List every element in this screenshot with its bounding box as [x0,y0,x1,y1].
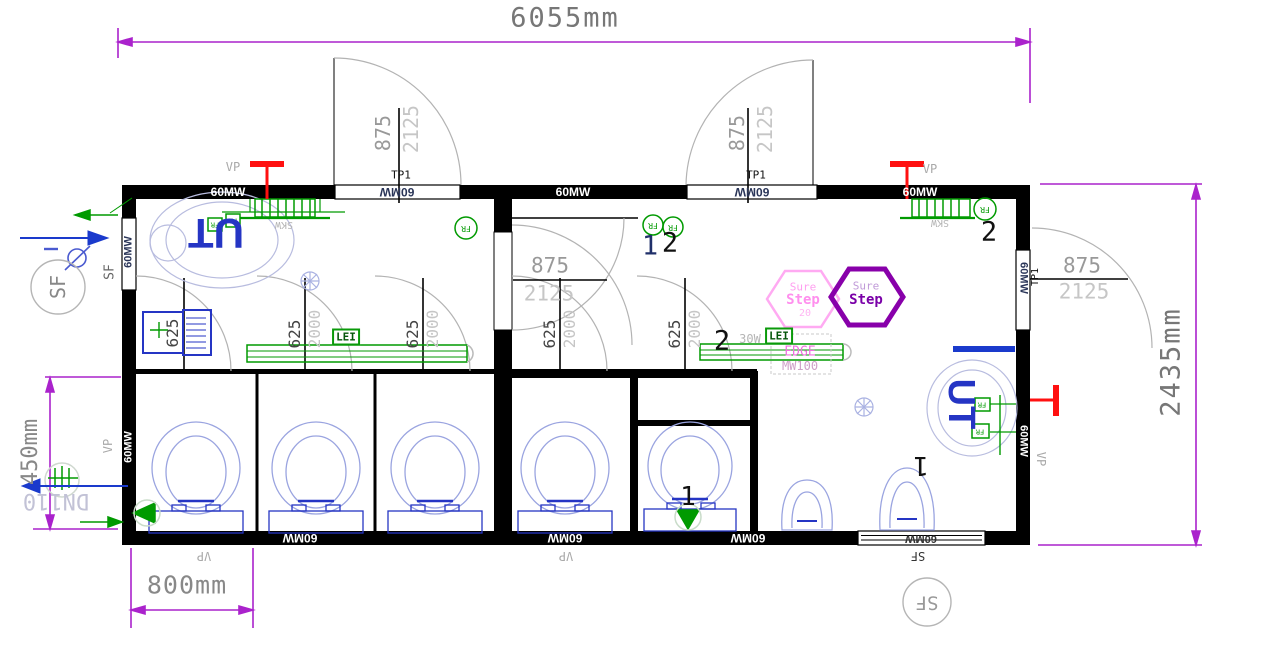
heater-t-3 [1030,385,1056,416]
wall-label-right-1: 60MW [1018,262,1029,294]
skw-label-2: SKW [931,217,949,227]
radiator-2 [900,199,975,218]
door-arc-1 [334,58,461,185]
dim-stall-pitch: 800mm [147,573,227,598]
zone-number-1c: 1 [913,452,929,478]
floor-plan-canvas: 6055mm 2435mm 800mm 450mm DN110 60MW 60M… [0,0,1286,655]
vent-symbol-2 [855,398,873,416]
wall-label-left-2: 60MW [124,431,135,463]
flow-triangle-toilet5 [677,510,699,529]
door3-height: 2125 [1059,282,1110,303]
wall-label-left-1: 60MW [124,236,135,268]
zone-number-1b: 1 [680,484,696,510]
stall4-door-height: 2000 [562,310,578,349]
zone-number-2c: 2 [714,328,730,355]
vent-symbol-1 [301,272,319,290]
stall5-door-width: 625 [667,320,683,349]
toilet-3 [388,422,482,533]
dim-overall-width: 6055mm [510,5,620,32]
wall-label-top-3: 60MW [903,186,938,198]
edge-label: EDGE [784,346,815,359]
zone-number-1a: 1 [642,233,658,260]
diameter-symbol [44,246,90,270]
supply-arrow [20,231,108,245]
zone-number-2a: 2 [662,230,678,257]
toilet-1 [149,422,243,533]
sf-fan-left-label: SF [48,275,68,299]
fr-label-2: FR [648,221,658,229]
vp-label-1: VP [226,161,240,173]
stall2-door-width: 625 [287,320,303,349]
vp-label-6: VP [1035,452,1047,466]
wall-label-top-2: 60MW [556,186,591,198]
wall-label-top-1: 60MW [211,186,246,198]
center-door-width: 875 [531,256,569,277]
surestep-pink-word1: Sure [790,282,817,293]
surestep-purple-word2: Step [849,293,883,307]
wall-label-bottom-3: 60MW [731,532,766,544]
door2-width: 875 [727,115,747,151]
tp1-label-2: TP1 [746,170,766,181]
wall-label-bottom-2: 60MW [548,532,583,544]
wall-label-bottom-1: 60MW [283,532,318,544]
center-door-height: 2125 [524,284,575,305]
door-arc-2 [686,60,813,185]
stall5-door-height: 2000 [687,310,703,349]
toilet-4 [518,422,612,533]
fr-label-1: FR [461,224,471,232]
center-door-opening [494,232,512,330]
floorplan-geometry [0,0,1286,655]
dim-drain-pipe: DN110 [23,489,89,511]
surestep-pink-number: 20 [799,309,811,319]
wall-label-door-2: 60MW [735,186,770,198]
toilets [149,422,736,533]
wall-label-louvre: 60MW [905,533,937,544]
sf-label-left: SF [104,264,117,280]
dim-overall-depth: 2435mm [1158,307,1185,417]
dim-rear-offset: 450mm [20,419,42,485]
vp-label-2: VP [923,163,937,175]
fr-label-4: FR [980,205,990,213]
urinals [782,468,934,530]
urinal-1 [782,480,833,530]
wall-label-right-2: 60MW [1018,425,1029,457]
door1-height: 2125 [401,105,421,153]
mirror-bar [953,346,1015,352]
sf-label-bottom: SF [911,550,925,562]
lei-box-1: LEI [332,329,360,346]
surestep-pink-word2: Step [786,293,820,307]
vp-label-5: VP [102,439,114,453]
sf-fan-bottom-label: SF [916,593,939,612]
surestep-purple-word1: Sure [853,281,880,292]
door1-width: 875 [373,115,393,151]
stall1-door-width: 625 [165,319,181,348]
ut-label-top-left: UT [188,212,244,254]
lei-box-2: LEI [765,328,793,345]
zone-number-2b: 2 [981,219,997,246]
door2-height: 2125 [755,105,775,153]
vp-label-3: VP [559,550,573,562]
vp-label-4: VP [197,550,211,562]
stall4-door-width: 625 [542,320,558,349]
heater-watt-label: 30W [739,333,761,345]
mw100-label: MW100 [782,360,818,372]
toilet-2 [269,422,363,533]
door3-width: 875 [1063,256,1101,277]
wall-label-door-1: 60MW [380,186,415,198]
tp1-label-1: TP1 [391,170,411,181]
stall3-door-width: 625 [405,320,421,349]
tp1-label-3: TP1 [1031,268,1041,286]
skw-label-1: SKW [275,219,293,229]
interior-walls [136,58,813,531]
fr-label-3: FR [668,223,678,231]
stall2-door-height: 2000 [307,310,323,349]
ut-label-bottom-right: UT [942,379,980,430]
stall3-door-height: 2000 [425,310,441,349]
